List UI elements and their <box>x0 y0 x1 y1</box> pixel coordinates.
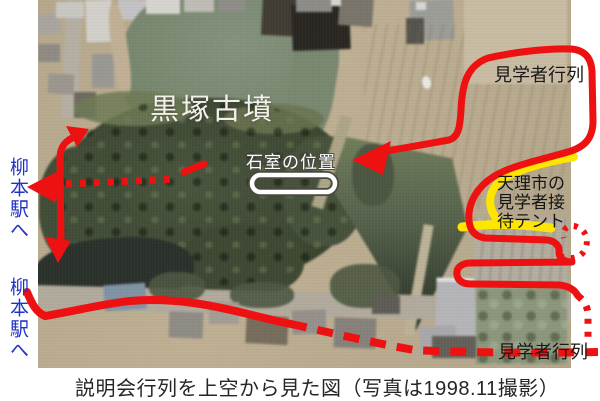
station-direction-label-lower: 柳本駅へ <box>4 277 31 361</box>
dotted-route-dash <box>184 164 204 172</box>
path-to-station-vertical <box>60 136 77 247</box>
bottom-route-solid <box>27 292 291 324</box>
annotated-aerial-figure: 黒塚古墳 石室の位置 見学者行列 天理市の 見学者接 待テント 見学者行列 柳本… <box>0 0 600 401</box>
site-name-label: 黒塚古墳 <box>150 86 274 128</box>
visitor-queue-label-top: 見学者行列 <box>494 61 584 87</box>
visitor-queue-label-bottom: 見学者行列 <box>498 338 588 364</box>
dotted-route-upper <box>66 179 176 184</box>
station-direction-label-upper: 柳本駅へ <box>4 157 31 241</box>
stone-chamber-marker-rim <box>252 175 335 192</box>
stone-chamber-label: 石室の位置 <box>246 148 336 173</box>
arrowhead-left <box>27 170 60 203</box>
figure-caption: 説明会行列を上空から見た図（写真は1998.11撮影） <box>75 372 559 401</box>
tent-label: 天理市の 見学者接 待テント <box>497 174 565 231</box>
queue-arrowhead-to-chamber <box>352 141 391 175</box>
queue-dotted-descent <box>578 296 588 343</box>
arrowhead-down <box>45 237 71 263</box>
